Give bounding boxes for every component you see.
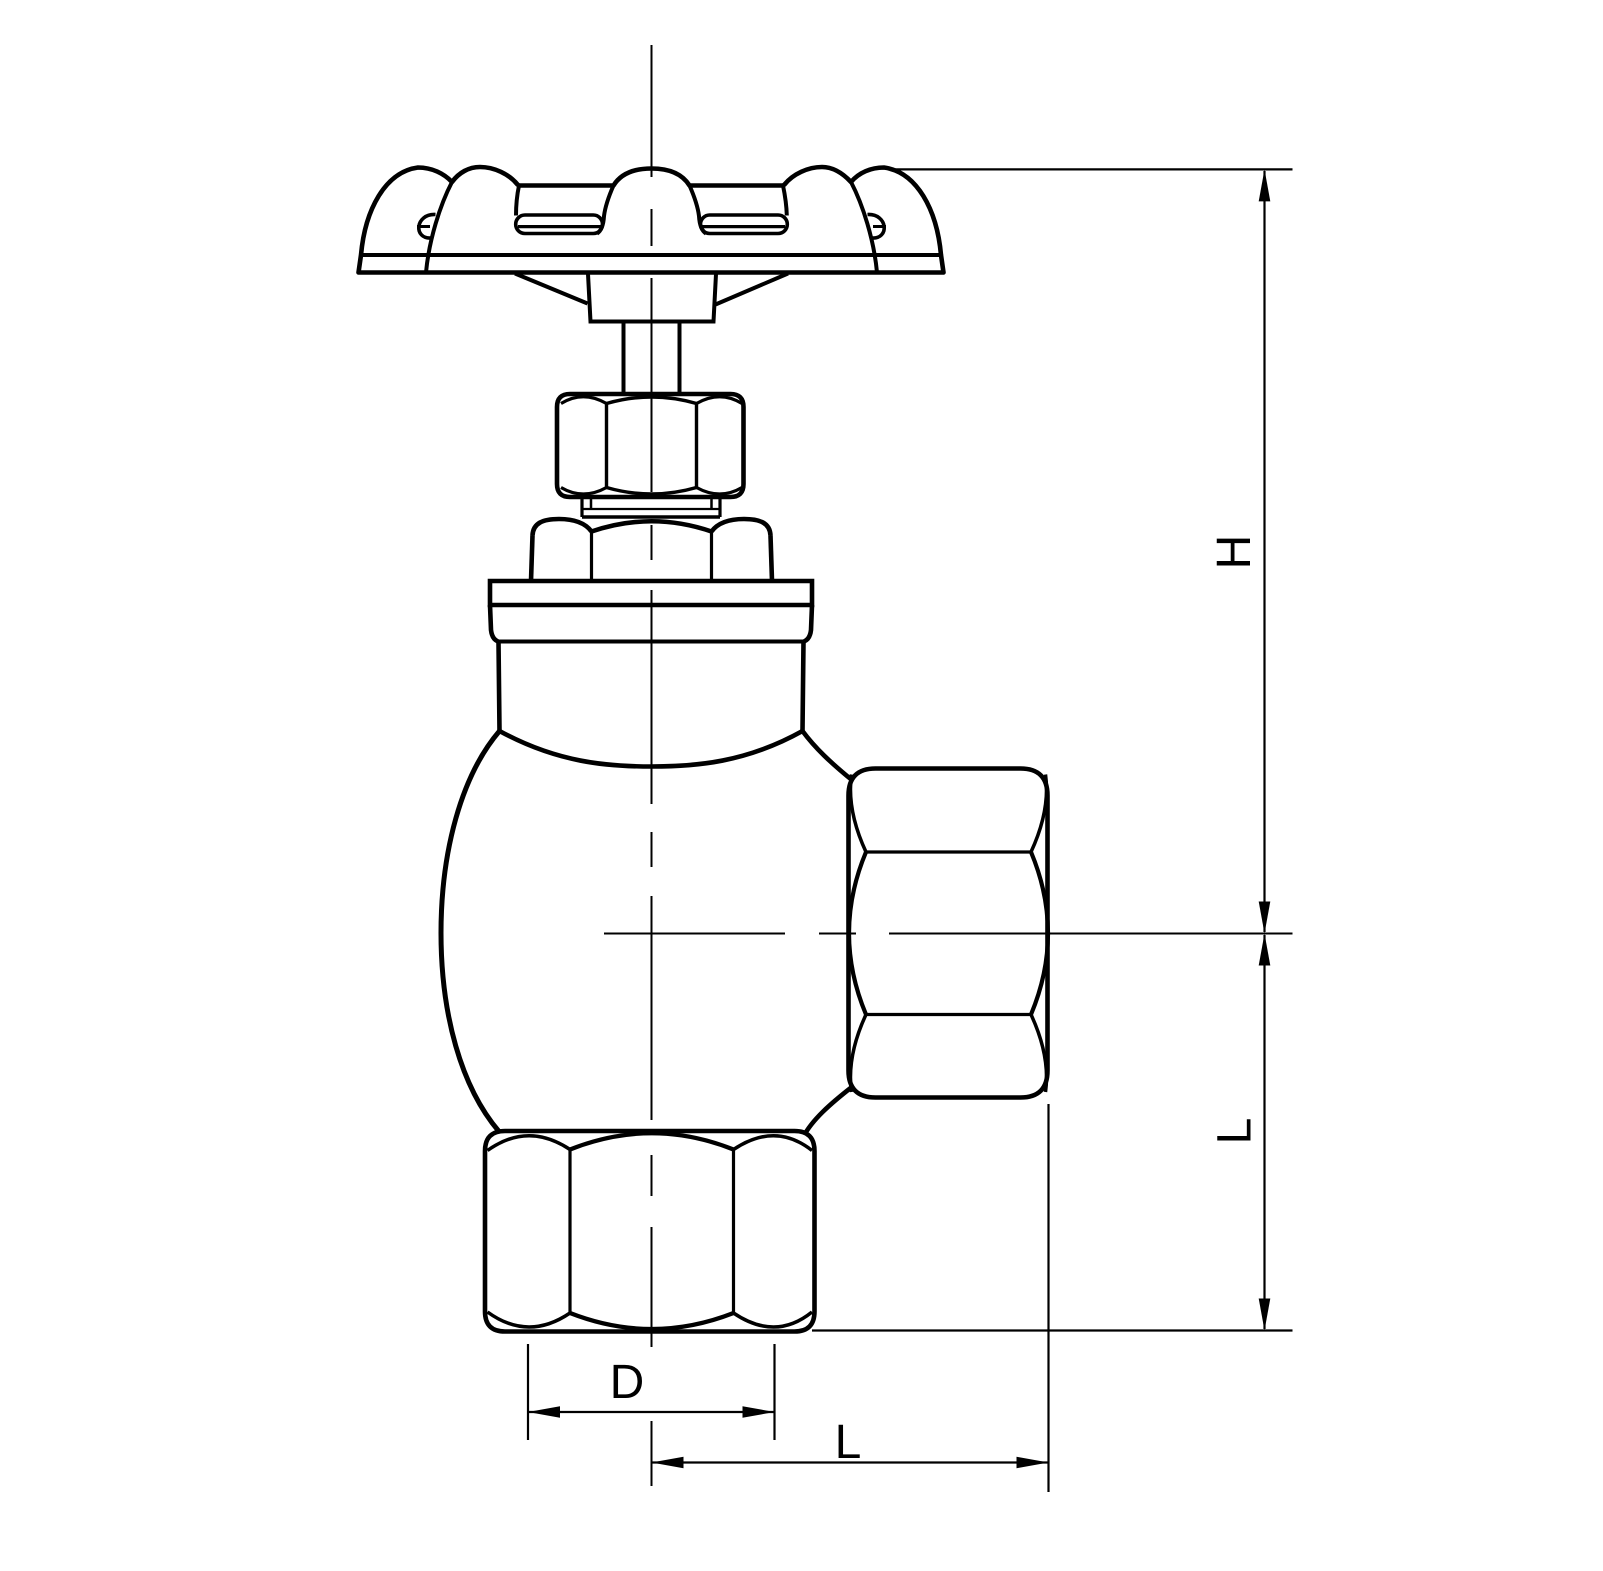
svg-text:D: D xyxy=(610,1356,645,1409)
svg-text:L: L xyxy=(835,1416,862,1469)
svg-text:L: L xyxy=(1209,1118,1262,1145)
svg-text:H: H xyxy=(1208,535,1261,570)
